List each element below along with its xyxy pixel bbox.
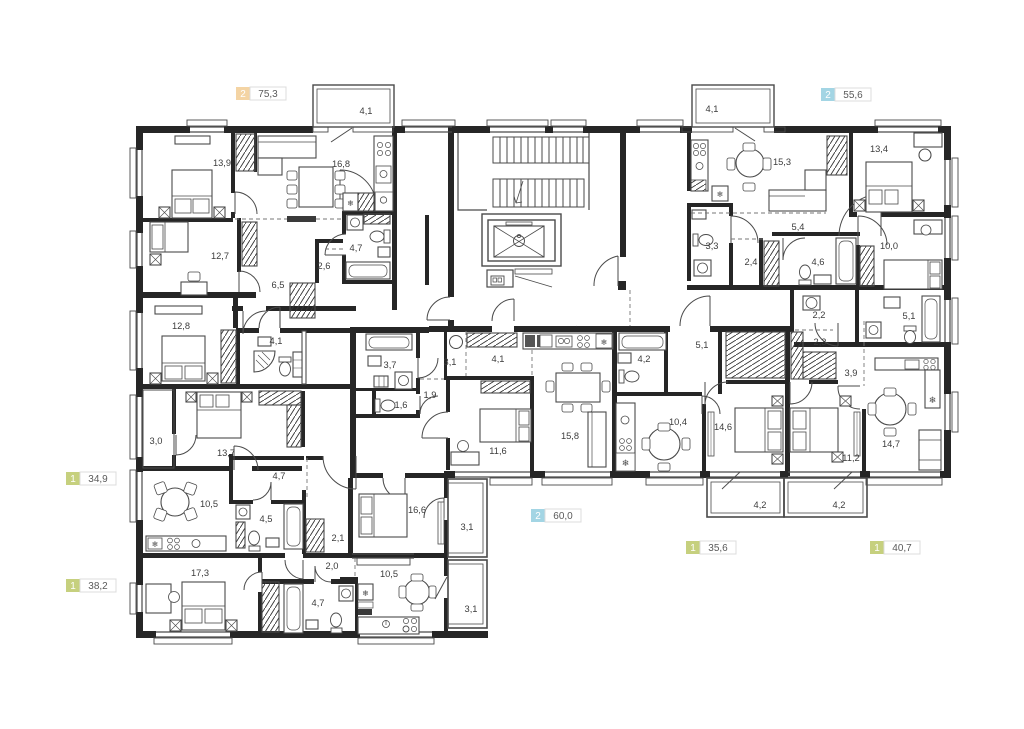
svg-text:1,6: 1,6 bbox=[395, 400, 408, 410]
svg-text:5,1: 5,1 bbox=[696, 340, 709, 350]
svg-text:11,6: 11,6 bbox=[489, 446, 506, 456]
svg-text:2,2: 2,2 bbox=[813, 310, 826, 320]
svg-text:17,3: 17,3 bbox=[191, 568, 209, 578]
svg-text:16,6: 16,6 bbox=[408, 505, 426, 515]
svg-text:38,2: 38,2 bbox=[88, 581, 108, 592]
svg-text:4,2: 4,2 bbox=[638, 354, 651, 364]
svg-text:4,1: 4,1 bbox=[360, 106, 373, 116]
svg-text:❄: ❄ bbox=[717, 190, 724, 199]
svg-text:3,1: 3,1 bbox=[444, 357, 457, 367]
svg-text:1: 1 bbox=[70, 581, 76, 592]
svg-text:4,2: 4,2 bbox=[754, 500, 767, 510]
svg-text:55,6: 55,6 bbox=[843, 90, 863, 101]
svg-text:10,4: 10,4 bbox=[669, 417, 687, 427]
svg-text:40,7: 40,7 bbox=[892, 543, 912, 554]
svg-text:❄: ❄ bbox=[601, 338, 608, 347]
svg-text:2,3: 2,3 bbox=[814, 337, 827, 347]
svg-text:11,2: 11,2 bbox=[842, 453, 859, 463]
svg-text:6,5: 6,5 bbox=[272, 280, 285, 290]
svg-text:❄: ❄ bbox=[347, 199, 354, 208]
svg-text:35,6: 35,6 bbox=[708, 543, 728, 554]
svg-text:2,1: 2,1 bbox=[332, 533, 345, 543]
svg-text:1: 1 bbox=[874, 543, 880, 554]
svg-text:2: 2 bbox=[535, 511, 541, 522]
svg-text:10,5: 10,5 bbox=[380, 569, 398, 579]
svg-text:3,7: 3,7 bbox=[384, 360, 397, 370]
svg-text:14,6: 14,6 bbox=[714, 422, 732, 432]
svg-text:2,0: 2,0 bbox=[326, 561, 339, 571]
svg-text:4,7: 4,7 bbox=[273, 471, 286, 481]
svg-text:4,6: 4,6 bbox=[812, 257, 825, 267]
svg-text:1: 1 bbox=[70, 474, 76, 485]
svg-text:3,1: 3,1 bbox=[461, 522, 474, 532]
svg-text:❄: ❄ bbox=[929, 395, 937, 405]
svg-text:15,8: 15,8 bbox=[561, 431, 579, 441]
svg-text:4,1: 4,1 bbox=[270, 336, 283, 346]
svg-text:60,0: 60,0 bbox=[553, 511, 573, 522]
svg-text:❄: ❄ bbox=[622, 458, 630, 468]
svg-text:2: 2 bbox=[825, 90, 831, 101]
svg-text:2,4: 2,4 bbox=[745, 257, 758, 267]
svg-text:4,7: 4,7 bbox=[350, 243, 363, 253]
svg-text:1: 1 bbox=[690, 543, 696, 554]
svg-text:1,9: 1,9 bbox=[424, 390, 437, 400]
svg-text:3,0: 3,0 bbox=[150, 436, 163, 446]
svg-text:75,3: 75,3 bbox=[258, 89, 278, 100]
svg-text:3,9: 3,9 bbox=[845, 368, 858, 378]
svg-text:2,6: 2,6 bbox=[318, 261, 331, 271]
svg-text:4,7: 4,7 bbox=[312, 598, 325, 608]
svg-text:4,2: 4,2 bbox=[833, 500, 846, 510]
svg-text:10,0: 10,0 bbox=[880, 241, 898, 251]
svg-text:❄: ❄ bbox=[152, 540, 159, 549]
svg-text:34,9: 34,9 bbox=[88, 474, 108, 485]
svg-text:4,5: 4,5 bbox=[260, 514, 273, 524]
svg-text:3,3: 3,3 bbox=[706, 241, 719, 251]
svg-text:4,1: 4,1 bbox=[492, 354, 505, 364]
svg-text:13,4: 13,4 bbox=[870, 144, 888, 154]
svg-text:15,3: 15,3 bbox=[773, 157, 791, 167]
svg-text:5,4: 5,4 bbox=[792, 222, 805, 232]
svg-text:❄: ❄ bbox=[362, 589, 369, 598]
svg-text:13,9: 13,9 bbox=[213, 158, 231, 168]
svg-text:12,8: 12,8 bbox=[172, 321, 190, 331]
svg-text:12,7: 12,7 bbox=[211, 251, 229, 261]
svg-text:2: 2 bbox=[240, 89, 246, 100]
svg-text:16,8: 16,8 bbox=[332, 159, 350, 169]
svg-text:13,7: 13,7 bbox=[217, 448, 235, 458]
svg-text:14,7: 14,7 bbox=[882, 439, 900, 449]
svg-text:5,1: 5,1 bbox=[903, 311, 916, 321]
svg-text:4,1: 4,1 bbox=[706, 104, 719, 114]
svg-text:3,1: 3,1 bbox=[465, 604, 478, 614]
svg-text:10,5: 10,5 bbox=[200, 499, 218, 509]
